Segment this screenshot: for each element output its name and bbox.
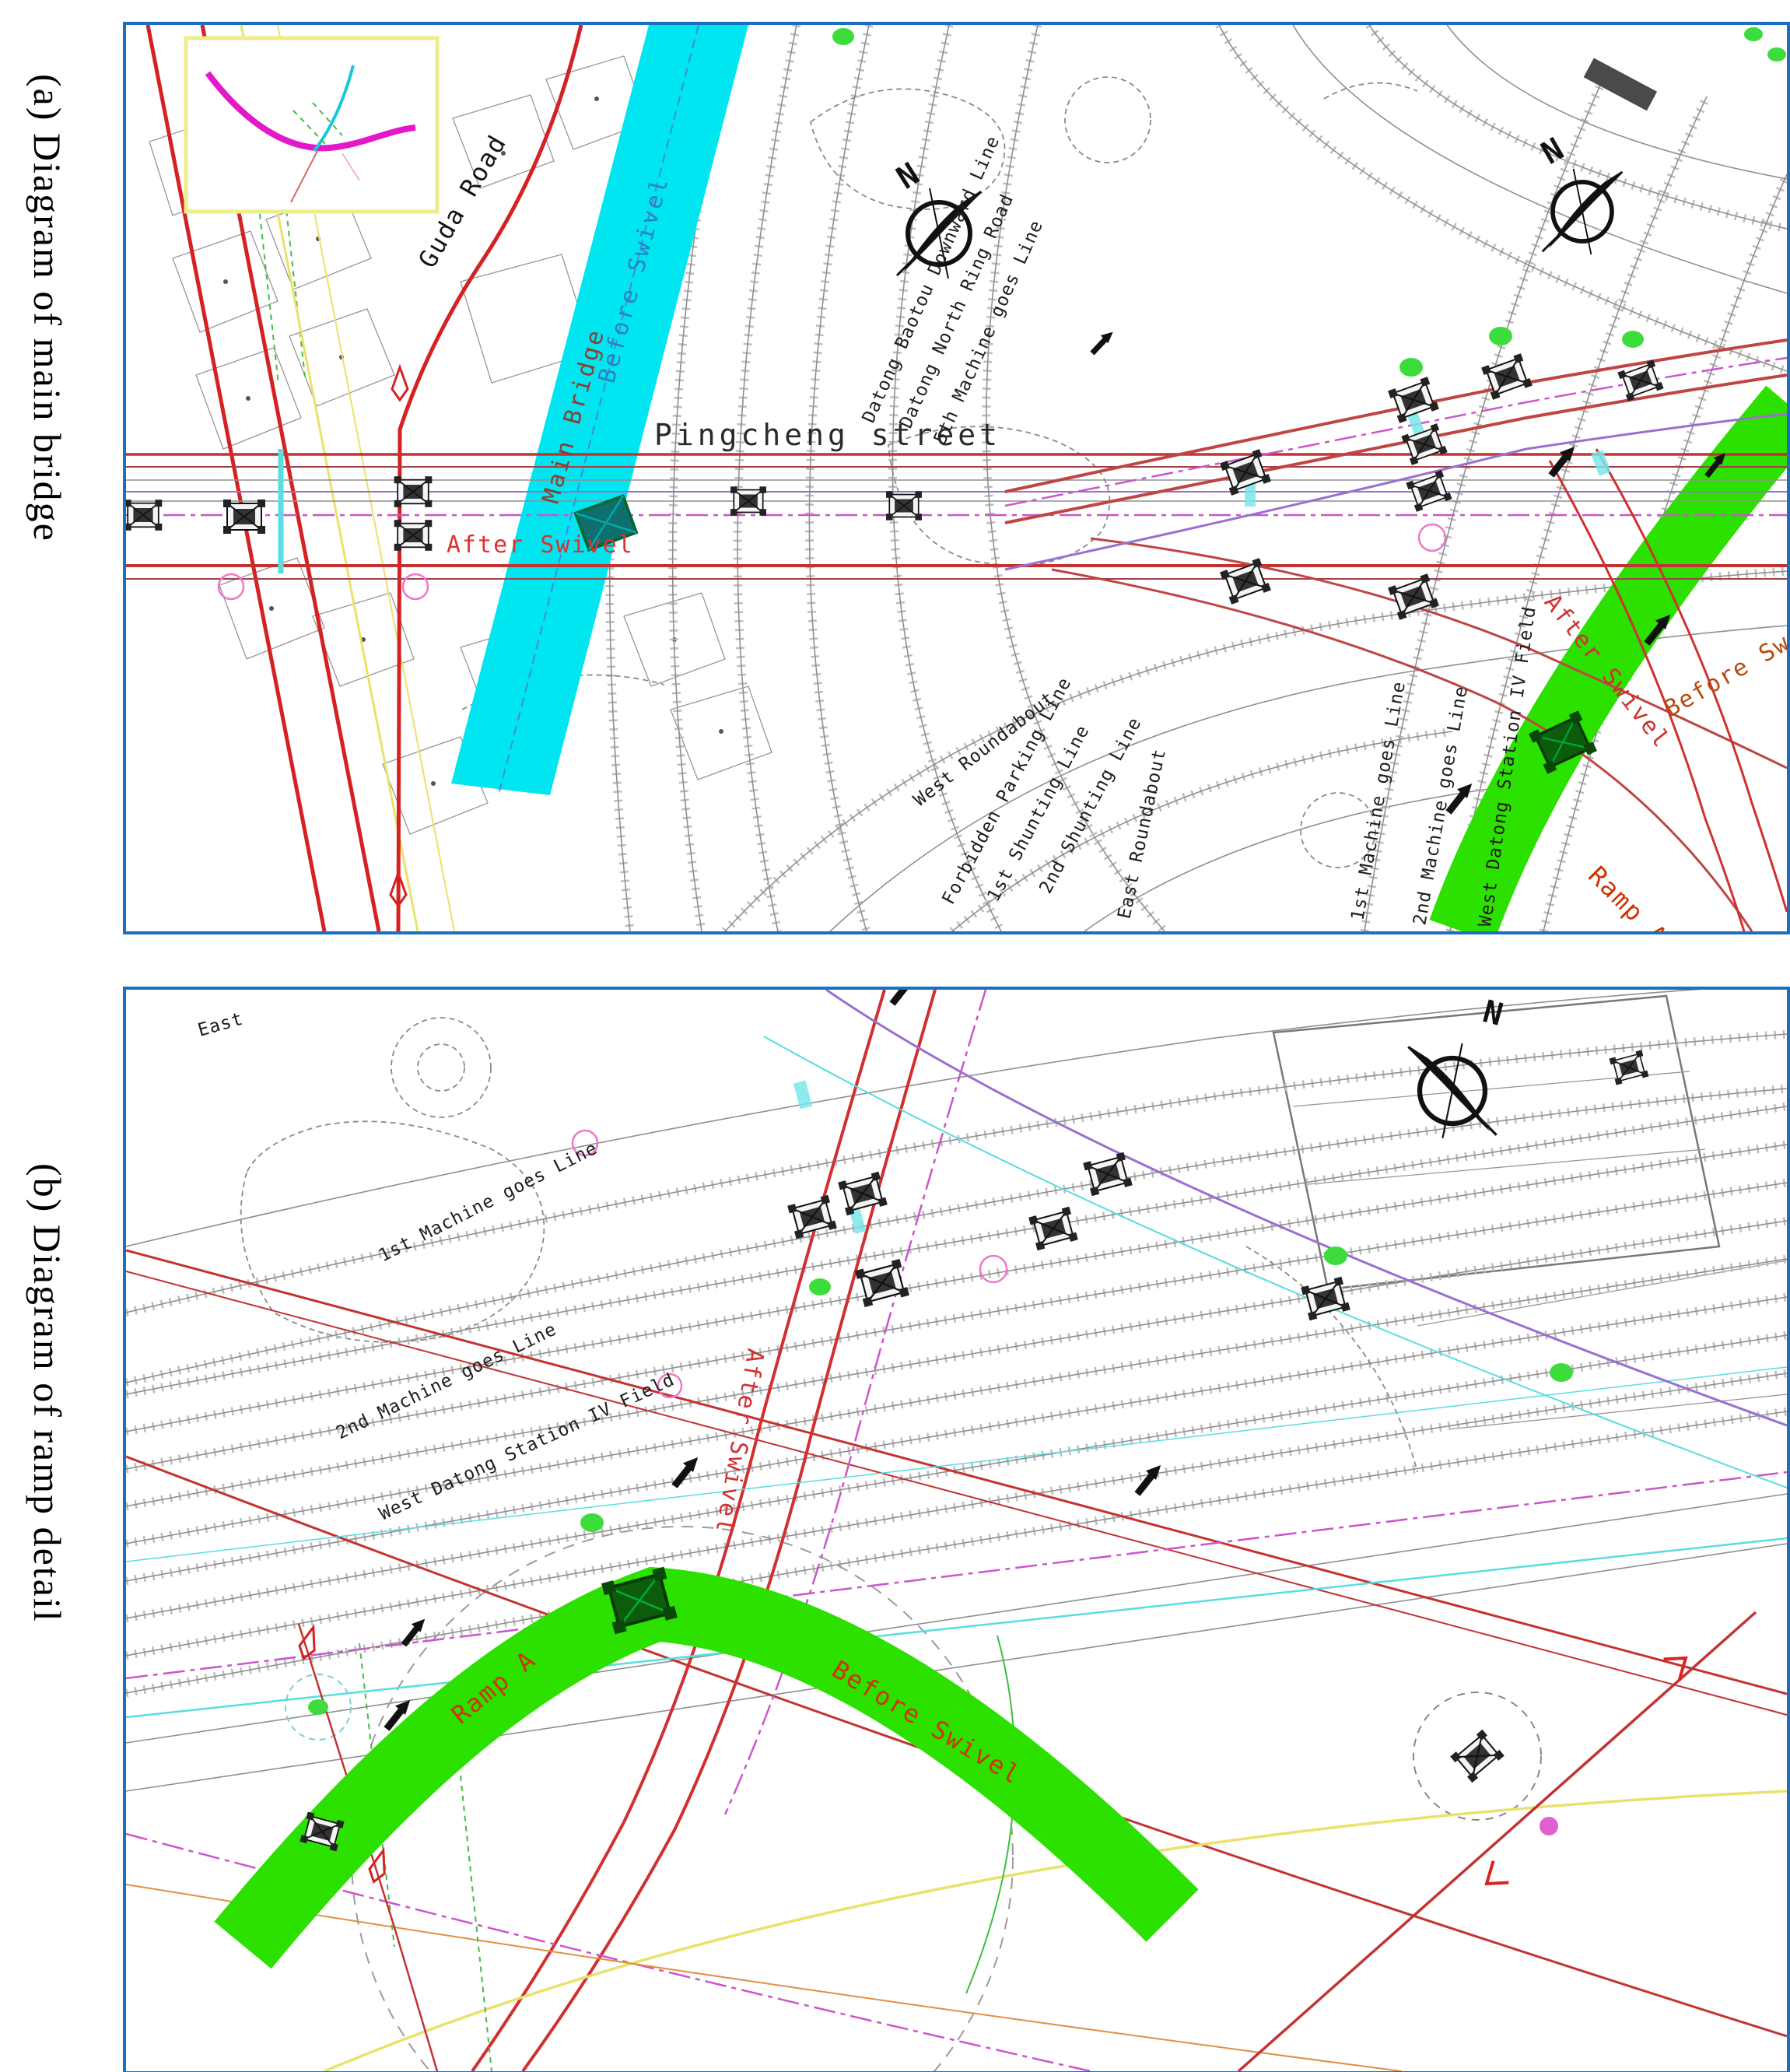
railway-tracks	[610, 25, 1787, 931]
caption-panel-a: (a) Diagram of main bridge	[25, 74, 70, 542]
panel-main-bridge: N N Guda Road Main Bridge Before Swivel …	[123, 22, 1790, 934]
ramp-a-label: Ramp A	[1582, 861, 1673, 931]
after-swivel-label: After Swivel	[447, 531, 634, 559]
bridge-piers	[126, 353, 1664, 774]
figure-page: (a) Diagram of main bridge (b) Diagram o…	[0, 0, 1790, 2072]
railway-tracks	[126, 990, 1787, 1791]
machine1-line-label: 1st Machine goes Line	[1347, 679, 1410, 922]
caption-panel-b: (b) Diagram of ramp detail	[25, 1163, 70, 1623]
machine2-line-label: 2nd Machine goes Line	[333, 1319, 560, 1443]
main-bridge-drawing: N N Guda Road Main Bridge Before Swivel …	[126, 25, 1787, 931]
compass-n-label: N	[1479, 994, 1506, 1033]
road-lines	[126, 990, 1787, 2071]
inset-key-map	[186, 38, 437, 212]
compass-rose	[1408, 1043, 1496, 1138]
east-label: East	[195, 1008, 245, 1040]
ramp-detail-drawing: N East 1st Machine goes Line 2nd Machine…	[126, 990, 1787, 2071]
machine1-line-label: 1st Machine goes Line	[376, 1138, 601, 1267]
panel-ramp-detail: N East 1st Machine goes Line 2nd Machine…	[123, 987, 1790, 2072]
before-swivel-green-label: Before Swivel	[1660, 598, 1788, 723]
